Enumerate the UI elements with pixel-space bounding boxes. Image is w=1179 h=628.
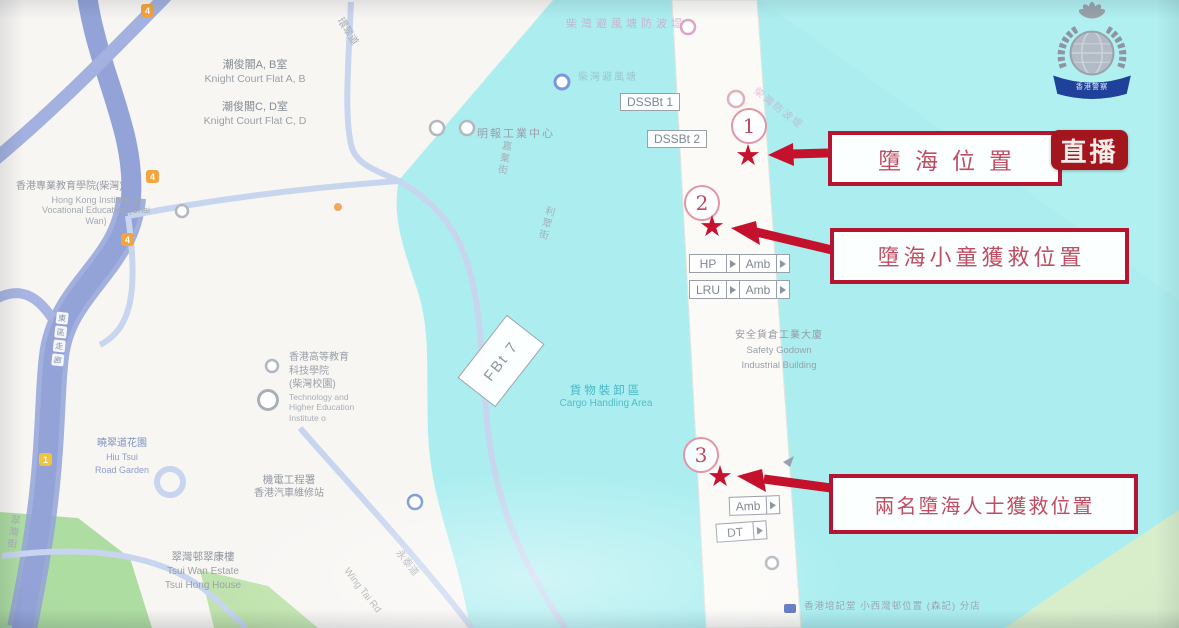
direction-triangle-icon bbox=[726, 281, 739, 298]
direction-triangle-icon bbox=[776, 255, 789, 272]
unit-tag-dssbt1: DSSBt 1 bbox=[620, 93, 680, 111]
star-marker-icon: ★ bbox=[707, 463, 733, 492]
police-briefing-map-slide: 4 4 4 1 潮俊閣A, B室 Knight Court Flat A, B … bbox=[0, 0, 1179, 628]
direction-triangle-icon bbox=[776, 281, 789, 298]
unit-tag-amb-2: Amb bbox=[739, 280, 790, 299]
direction-triangle-icon bbox=[752, 521, 766, 539]
unit-tag-amb-1: Amb bbox=[739, 254, 790, 273]
star-marker-icon: ★ bbox=[735, 142, 761, 171]
globe-icon bbox=[1071, 32, 1114, 75]
annotation-layer: DSSBt 1 DSSBt 2 HP Amb LRU Amb Amb DT bbox=[0, 0, 1179, 628]
direction-triangle-icon bbox=[766, 496, 780, 513]
unit-tag-dssbt2: DSSBt 2 bbox=[647, 130, 707, 148]
badge-ribbon-text: 香港警察 bbox=[1076, 82, 1109, 91]
unit-tag-hp: HP bbox=[689, 254, 740, 273]
location-marker-1: 1 bbox=[731, 108, 767, 144]
callout-two-rescued-location: 兩名墮海人士獲救位置 bbox=[829, 474, 1138, 534]
unit-tag-lru: LRU bbox=[689, 280, 740, 299]
star-marker-icon: ★ bbox=[699, 213, 725, 242]
callout-child-rescued-location: 墮海小童獲救位置 bbox=[830, 228, 1129, 284]
live-badge: 直播 bbox=[1051, 130, 1128, 170]
unit-tag-dt: DT bbox=[715, 520, 767, 543]
direction-triangle-icon bbox=[726, 255, 739, 272]
hong-kong-police-badge-icon: 香港警察 bbox=[1048, 2, 1136, 100]
unit-tag-fbt7: FBt 7 bbox=[457, 315, 544, 408]
unit-tag-amb-south: Amb bbox=[729, 495, 781, 516]
bauhinia-icon bbox=[1078, 2, 1107, 20]
callout-fall-location: 墮海位置 bbox=[828, 131, 1062, 186]
